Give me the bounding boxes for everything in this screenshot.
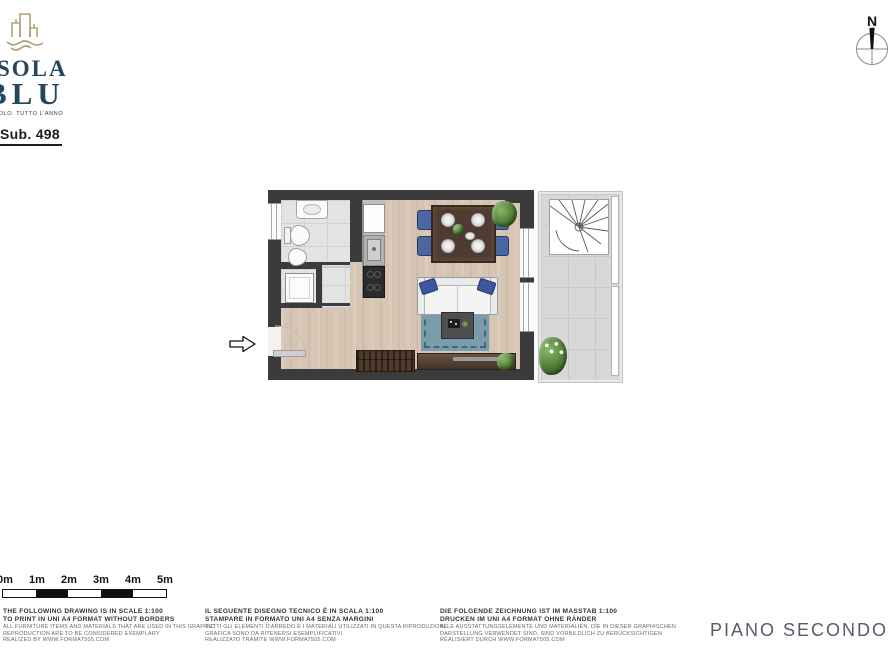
- disclaimer-line: DIE FOLGENDE ZEICHNUNG IST IM MASSTAB 1:…: [440, 608, 672, 616]
- scale-label: 4m: [125, 574, 141, 586]
- terrace-railing: [611, 196, 619, 284]
- window: [268, 203, 281, 240]
- scale-segment: [101, 590, 134, 597]
- table-dish: [465, 232, 475, 240]
- logo-name-bottom: BLU: [0, 80, 64, 108]
- scale-segment: [3, 590, 36, 597]
- compass: N: [849, 13, 893, 73]
- sink-bowl: [303, 204, 321, 215]
- terrace-door-window: [520, 282, 534, 332]
- plate: [441, 239, 455, 253]
- floorplan-page: ISOLA BLU JESOLO. TUTTO L'ANNO Sub. 498 …: [0, 0, 893, 670]
- bathroom-sink: [296, 200, 328, 219]
- sliding-door: [322, 262, 350, 265]
- scale-segment: [68, 590, 101, 597]
- disclaimer-line: THE FOLLOWING DRAWING IS IN SCALE 1:100: [3, 608, 201, 616]
- slatted-bench: [356, 350, 415, 372]
- dining-table: [431, 205, 496, 263]
- scale-segment: [133, 590, 166, 597]
- compass-rose-icon: [849, 23, 893, 71]
- wall-segment: [268, 190, 534, 200]
- scale-segment: [36, 590, 69, 597]
- scale-label: 2m: [61, 574, 77, 586]
- disclaimer-line: IL SEGUENTE DISEGNO TECNICO È IN SCALA 1…: [205, 608, 437, 616]
- washing-machine: [285, 273, 314, 303]
- scale-label: 1m: [29, 574, 45, 586]
- fridge: [363, 204, 385, 233]
- scale-bar-strip: [2, 589, 167, 598]
- disclaimer-english: THE FOLLOWING DRAWING IS IN SCALE 1:100 …: [3, 608, 201, 644]
- wall-segment: [268, 238, 281, 327]
- disclaimer-line: ALLE AUSSTATTUNGSELEMENTE UND MATERIALIE…: [440, 624, 672, 631]
- wall-segment: [350, 200, 362, 262]
- scale-label: 5m: [157, 574, 173, 586]
- terrace-door-window: [520, 228, 534, 278]
- isola-blu-logo: ISOLA BLU JESOLO. TUTTO L'ANNO: [0, 10, 64, 117]
- corridor-floor: [322, 262, 350, 308]
- logo-tagline: JESOLO. TUTTO L'ANNO: [0, 111, 64, 117]
- disclaimer-line: DARSTELLUNG VERWENDET SIND, SIND VORBILD…: [440, 631, 672, 638]
- buildings-wave-icon: [3, 10, 47, 56]
- sliding-door-track: [322, 266, 350, 268]
- disclaimer-line: TUTTI GLI ELEMENTI D'ARREDO E I MATERIAL…: [205, 624, 437, 631]
- entrance-arrow-icon: [229, 335, 257, 353]
- plate: [471, 239, 485, 253]
- spiral-staircase: [549, 199, 609, 255]
- disclaimer-italian: IL SEGUENTE DISEGNO TECNICO È IN SCALA 1…: [205, 608, 437, 644]
- wall-segment: [268, 356, 281, 369]
- wall-segment: [520, 200, 534, 228]
- disclaimer-line: REALISIERT DURCH WWW.FORMAT505.COM: [440, 637, 672, 644]
- scale-bar: 0m 1m 2m 3m 4m 5m: [0, 574, 190, 600]
- scale-label: 3m: [93, 574, 109, 586]
- kitchen-sink: [363, 235, 385, 266]
- disclaimer-line: STAMPARE IN FORMATO UNI A4 SENZA MARGINI: [205, 616, 437, 624]
- terrace-railing: [611, 286, 619, 376]
- tv: [453, 357, 501, 361]
- disclaimer-german: DIE FOLGENDE ZEICHNUNG IST IM MASSTAB 1:…: [440, 608, 672, 644]
- disclaimer-line: REPRODUCTION ARE TO BE CONSIDERED EXEMPL…: [3, 631, 201, 638]
- plate: [441, 213, 455, 227]
- plate: [471, 213, 485, 227]
- spiral-staircase-icon: [550, 200, 608, 254]
- disclaimer-line: DRUCKEN IM UNI A4 FORMAT OHNE RÄNDER: [440, 616, 672, 624]
- coffee-table: [441, 312, 474, 339]
- scale-label: 0m: [0, 574, 13, 586]
- wall-segment: [316, 269, 322, 305]
- disclaimer-line: REALIZED BY WWW.FORMAT505.COM: [3, 637, 201, 644]
- wall-segment: [281, 303, 322, 308]
- entrance-door-leaf: [273, 350, 306, 357]
- floor-title: PIANO SECONDO: [710, 620, 888, 641]
- wall-segment: [520, 330, 534, 369]
- stove: [363, 266, 385, 298]
- sliding-door: [322, 303, 350, 306]
- disclaimer-line: REALIZZATO TRAMITE WWW.FORMAT505.COM: [205, 637, 437, 644]
- disclaimer-line: GRAFICA SONO DA RITENERSI ESEMPLIFICATIV…: [205, 631, 437, 638]
- disclaimer-line: ALL FURNITURE ITEMS AND MATERIALS THAT A…: [3, 624, 201, 631]
- unit-number-label: Sub. 498: [0, 126, 62, 146]
- sliding-door-track: [322, 307, 350, 309]
- disclaimer-line: TO PRINT IN UNI A4 FORMAT WITHOUT BORDER…: [3, 616, 201, 624]
